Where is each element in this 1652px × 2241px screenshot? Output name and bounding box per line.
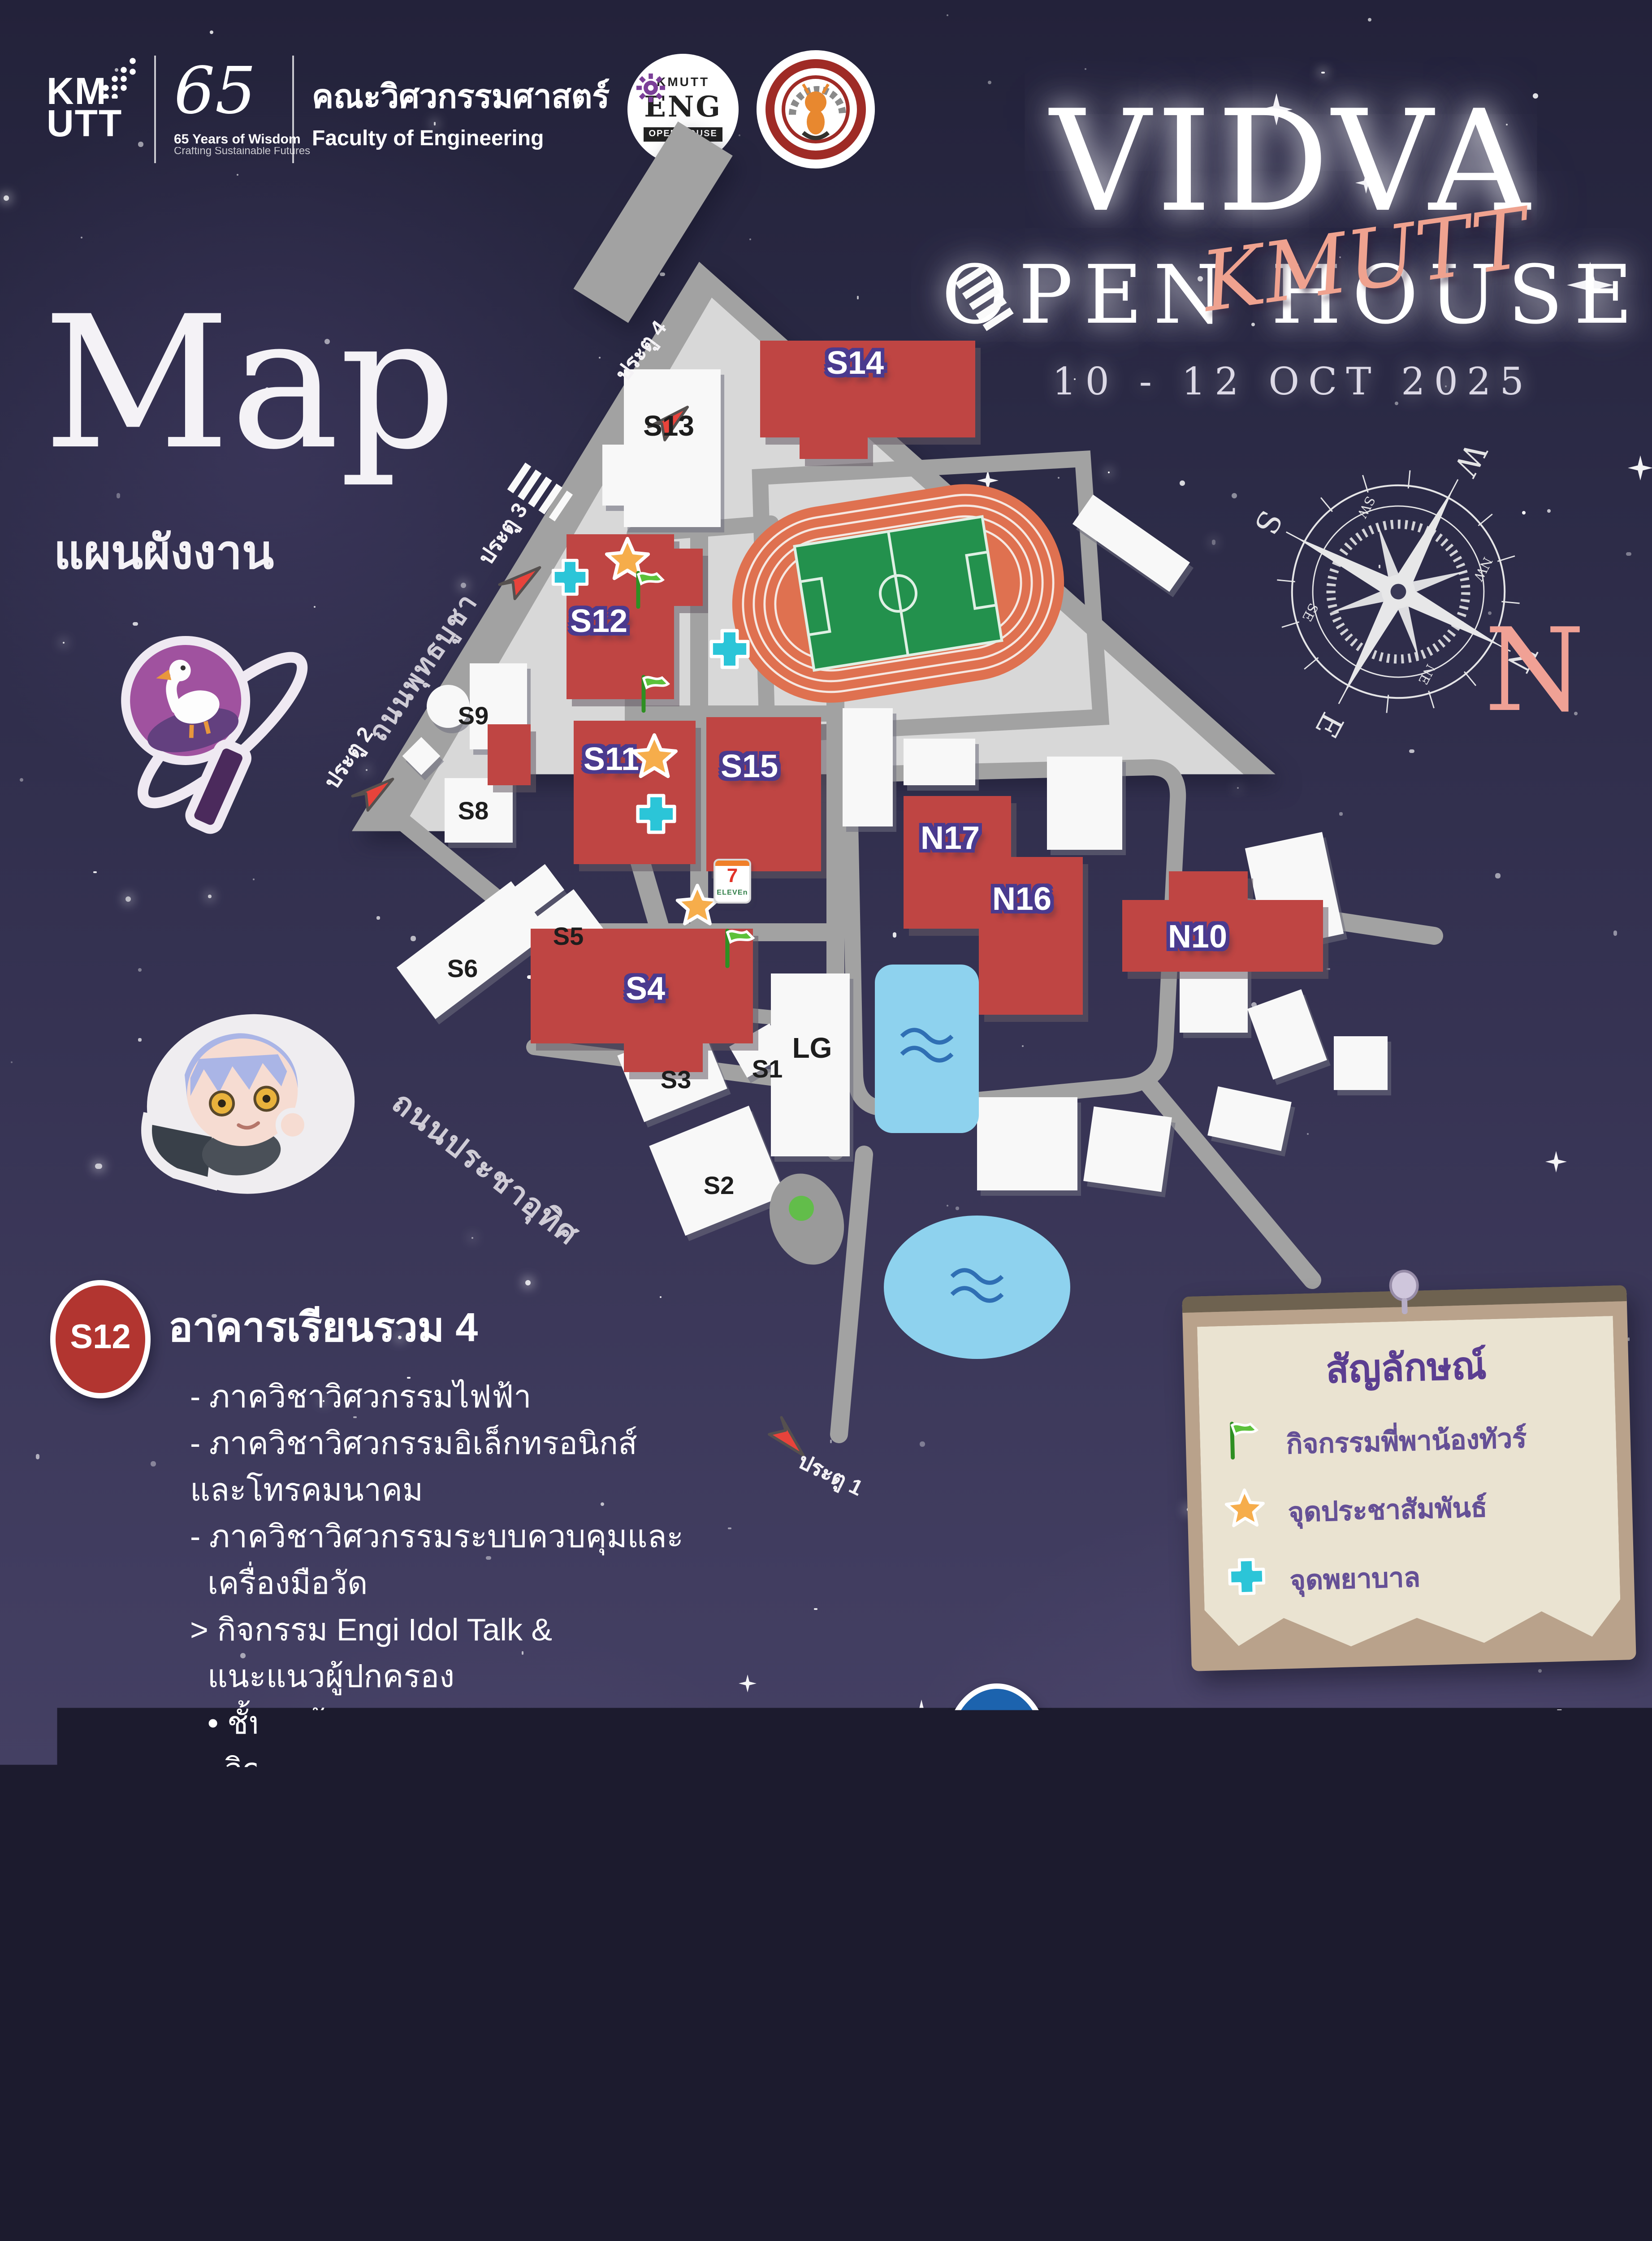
star [75,2141,78,2144]
star [1339,813,1342,815]
star [19,778,23,782]
star [80,236,83,238]
compass-letter: E [1308,706,1350,743]
ant-mascot-icon [760,54,871,165]
legend-card: สัญลักษณ์ กิจกรรมพี่พาน้องทัวร์จุดประชาส… [1182,1285,1636,1671]
star [138,969,142,972]
header-divider [154,56,156,163]
section-line: • ชั้น 2 ห้องประชุมคณะ [190,1700,893,1746]
star [700,607,702,609]
section-line: - ภาควิชาวิศวกรรมสิ่งแวดล้อม [190,2040,893,2087]
badge-code: S12 [70,1320,130,1359]
star [892,933,897,937]
building-code-badge: S12 [50,1280,151,1398]
star [55,2141,57,2143]
section-line: > กิจกรรม Workshop INNO-X [1086,2160,1649,2207]
compass-letter: NW [1470,554,1496,584]
star [4,196,9,201]
star [523,774,527,777]
kmutt-dots-icon [100,56,140,99]
section-line: - ภาควิชาวิศวกรรมอิเล็กทรอนิกส์ [190,1420,893,1467]
section-line: - ภาควิชาวิศวกรรมอุตสาหการ [1086,2114,1649,2160]
kmutt-logo: KM UTT [47,78,136,142]
section-line: - ภาควิชาวิศวกรรมเครื่องกล [1086,1974,1649,2020]
star [751,661,753,663]
legend-flag-icon [1221,1418,1265,1471]
star [1108,472,1110,474]
section-line: เครื่องมือวัด [190,1560,893,1606]
gear-icon [635,72,667,104]
star [367,770,368,772]
star [209,31,213,35]
anniversary-line2: Crafting Sustainable Futures [174,147,274,158]
badge-code: S15 [966,1723,1027,1762]
star [893,656,896,659]
star [565,655,568,659]
section-line: - ภาควิชาวิศวกรรมไฟฟ้า [190,1373,893,1420]
section-title: อาคารภาควิชาวิศวกรรมเคมี [1065,1683,1649,1755]
section-title: อาคารวิศววัฒนะ [1065,1881,1649,1952]
legend-item: จุดประชาสัมพันธ์ [1223,1478,1597,1540]
star [1057,477,1060,480]
section-s14: S14อาคารพระจอมเกล้าราชานุสรณ์- Engineeri… [50,2180,893,2241]
star [1085,68,1087,70]
star [661,272,666,277]
title-vidva: VIDVA [932,93,1652,233]
chibi-character-sticker [115,985,380,1228]
star [461,582,467,588]
star [1056,1873,1060,1878]
star [411,936,416,940]
legend-item-label: กิจกรรมพี่พาน้องทัวร์ [1286,1416,1527,1465]
badge-code: S14 [70,2219,130,2241]
section-title: อาคารพระจอมเกล้าราชานุสรณ์ [169,2180,893,2241]
north-letter: N [1484,606,1585,739]
star [698,1077,703,1081]
star [96,1163,102,1169]
star [1184,1826,1188,1830]
section-line: - ภาควิชาวิศวกรรมโยธา [190,1994,893,2040]
star [749,238,752,241]
sparkle-star [1153,757,1171,774]
anniversary-line1: 65 Years of Wisdom [174,131,274,147]
star [1021,1045,1023,1047]
star [1367,18,1371,22]
badge-code: S11 [71,1940,130,1979]
star [987,81,991,85]
star [956,1207,959,1210]
section-line: > กิจกรรม Engi Idol Talk & [190,1606,893,1653]
star [946,1204,948,1206]
event-title: VIDVA KMUTT OPEN HOUSE 10 - 12 OCT 2025 [932,93,1652,403]
building-code-badge: S14 [50,2180,151,2241]
seven-eleven-icon: 7 ELEVEn [714,859,751,904]
star [35,1454,40,1459]
star [1017,1234,1020,1237]
seven-eleven-7: 7 [715,866,749,887]
section-s15: S15อาคารภาควิชาวิศวกรรมเคมี- ภาควิชาวิศว… [947,1683,1649,1823]
map-heading-en: Map [43,294,456,477]
star [94,871,96,874]
section-lines: - ภาควิชาวิศวกรรมไฟฟ้า- ภาควิชาวิศวกรรมอ… [190,1373,893,1793]
faculty-name-th: คณะวิศวกรรมศาสตร์ [312,69,610,121]
star [1210,983,1212,986]
building-code-badge: S4 [947,1881,1047,1999]
star [920,1442,925,1447]
star [133,622,137,626]
star [1322,71,1325,74]
header-logo-row: KM UTT 65 65 Years of Wisdom Crafting Su… [47,50,875,169]
star [236,175,238,177]
seven-eleven-eleven: ELEVEn [715,887,749,896]
star [771,1882,777,1888]
star [946,14,947,16]
star [1628,1338,1630,1341]
star [1237,787,1239,789]
star [1496,873,1501,878]
anniversary-number: 65 [174,61,274,125]
faculty-name: คณะวิศวกรรมศาสตร์ Faculty of Engineering [312,69,610,150]
star [10,1062,12,1064]
legend-star-icon [1223,1486,1267,1539]
star [253,878,255,880]
section-lines: - ภาควิชาวิศวกรรมเคมี [1086,1777,1649,1823]
star [773,641,777,646]
star [1232,492,1237,498]
star [1229,761,1231,762]
eng-badge-open-house: OPEN HOUSE [643,127,722,142]
star [748,721,751,725]
legend-items: กิจกรรมพี่พาน้องทัวร์จุดประชาสัมพันธ์จุด… [1221,1410,1599,1608]
section-title: อาคารเรียนรวม 4 [169,1280,893,1352]
sparkle-star [977,470,999,491]
student-union-badge [757,50,875,169]
badge-code: S4 [976,1920,1018,1960]
star [598,356,600,358]
kmutt-eng-open-house-badge: KMUTT ENG OPEN HOUSE [627,54,739,165]
star [63,642,65,644]
section-lines: - ภาควิชาวิศวกรรมโยธา- ภาควิชาวิศวกรรมสิ… [190,1994,893,2087]
section-s4: S4อาคารวิศววัฒนะ- ภาควิชาวิศวกรรมเครื่อง… [947,1881,1649,2241]
star [901,2096,906,2102]
star [1060,925,1062,927]
sparkle-star [1545,1151,1567,1172]
faculty-name-en: Faculty of Engineering [312,125,610,150]
seven-eleven-stripe [715,861,749,866]
legend-paper: สัญลักษณ์ กิจกรรมพี่พาน้องทัวร์จุดประชาส… [1197,1316,1622,1660]
legend-cross-icon [1224,1554,1269,1607]
star [1212,540,1216,545]
star [559,1225,565,1231]
open-house-map-poster: KM UTT 65 65 Years of Wisdom Crafting Su… [0,0,1652,2241]
star [1539,1669,1542,1673]
anniversary-65: 65 65 Years of Wisdom Crafting Sustainab… [174,61,274,158]
section-line: - ภาควิชาวิศวกรรมเครื่องมือและ [1086,2020,1649,2067]
star [377,916,380,919]
compass-letter: S [1247,504,1289,540]
section-line: และโทรคมนาคม [190,1467,893,1513]
section-title: อาคารเรียนรวม 5 [169,1900,893,1972]
section-line: วิศวกรรมศาสตร์ [190,1746,893,1793]
map-heading-th: แผนผังงาน [54,516,274,590]
star [125,896,131,902]
star [773,1181,775,1182]
legend-item: กิจกรรมพี่พาน้องทัวร์ [1221,1410,1595,1471]
star [1307,1133,1309,1134]
star [763,1072,767,1076]
star [891,1834,895,1839]
section-line: - ภาควิชาวิศวกรรมระบบควบคุมและ [190,1513,893,1560]
star [856,296,859,299]
legend-frame: สัญลักษณ์ กิจกรรมพี่พาน้องทัวร์จุดประชาส… [1182,1285,1636,1671]
star [1252,1002,1257,1007]
star [116,493,120,498]
star [528,975,532,979]
legend-title: สัญลักษณ์ [1219,1334,1593,1403]
section-s12: S12อาคารเรียนรวม 4- ภาควิชาวิศวกรรมไฟฟ้า… [50,1280,893,1793]
section-s11: S11อาคารเรียนรวม 5- ภาควิชาวิศวกรรมโยธา-… [50,1900,893,2087]
star [343,1823,346,1826]
section-line: > Bangmod Hackathon [1086,2207,1649,2241]
star [1613,931,1617,935]
section-lines: - ภาควิชาวิศวกรรมเครื่องกล- ภาควิชาวิศวก… [1086,1974,1649,2241]
star [917,386,922,391]
star [925,1878,931,1884]
sparkle-star [907,1700,936,1728]
building-code-badge: S11 [50,1900,151,2019]
star [208,895,211,898]
section-line: วัสดุ [1086,2067,1649,2114]
legend-item: จุดพยาบาล [1224,1546,1599,1608]
sparkle-star [1628,455,1652,480]
star [472,1236,474,1238]
star [1327,967,1329,970]
kmutt-wordmark-bottom: UTT [47,109,136,141]
star [1080,1865,1085,1869]
legend-item-label: จุดประชาสัมพันธ์ [1288,1485,1488,1533]
pushpin-icon [1382,1269,1427,1320]
section-line: แนะแนวผู้ปกครอง [190,1653,893,1700]
event-date: 10 - 12 OCT 2025 [932,360,1652,403]
section-line: - ภาควิชาวิศวกรรมเคมี [1086,1777,1649,1823]
legend-item-label: จุดพยาบาล [1289,1555,1421,1601]
compass-letter: NE [1415,662,1439,687]
star [1627,551,1631,555]
star [943,1980,945,1982]
star [1180,480,1185,485]
building-code-badge: S15 [947,1683,1047,1802]
